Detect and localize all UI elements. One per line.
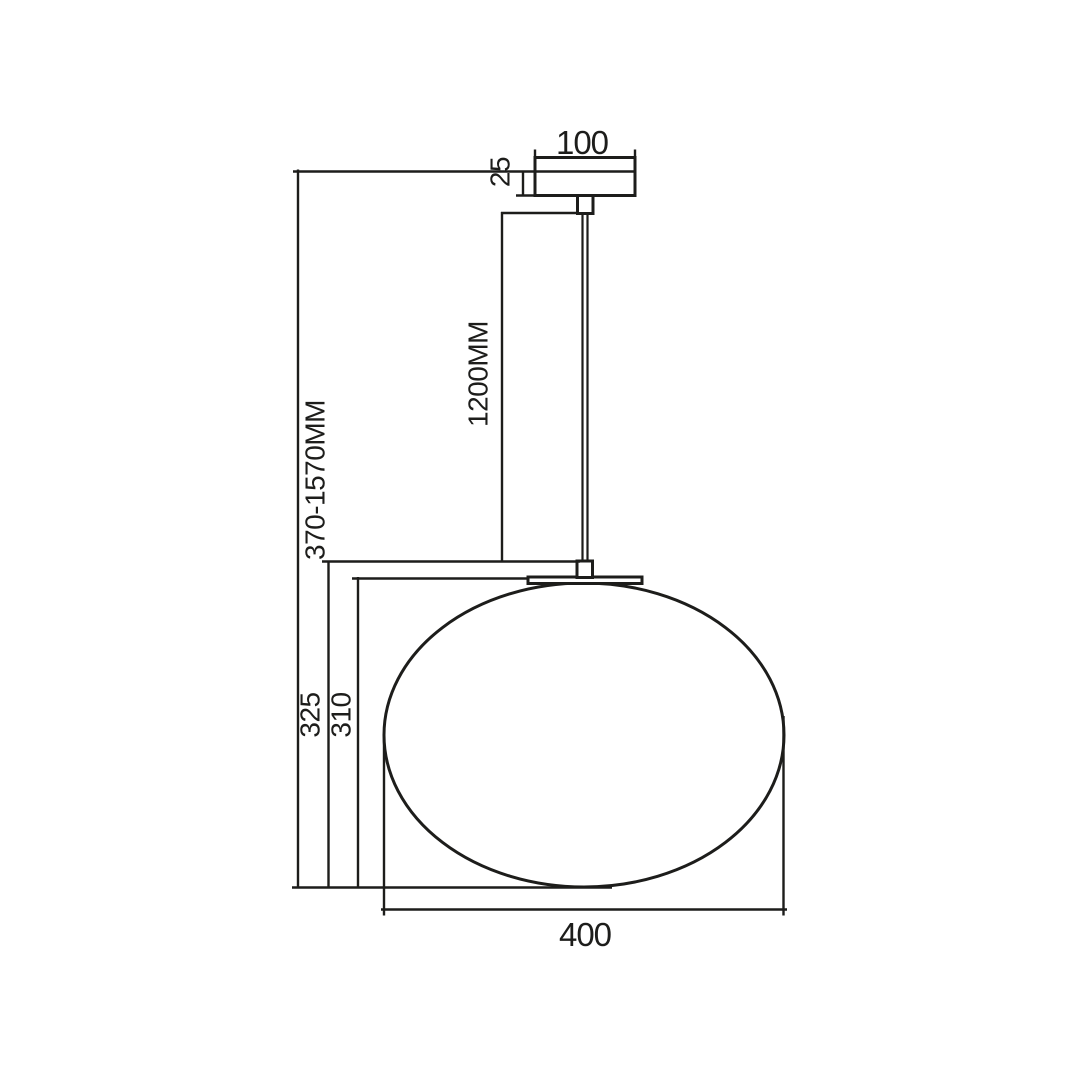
drawing-canvas: 100 25 1200MM 370-1570MM 325 310 400 (0, 0, 1080, 1080)
dim-label-shade-width: 400 (559, 916, 612, 953)
ceiling-stem-connector (578, 196, 594, 214)
dim-label-fixture-drop: 325 (295, 692, 326, 737)
shade-stem-connector (577, 561, 593, 578)
dim-label-canopy-width: 100 (556, 124, 609, 161)
dim-label-canopy-height: 25 (485, 157, 516, 187)
pendant-lamp-dimension-drawing: 100 25 1200MM 370-1570MM 325 310 400 (0, 0, 1080, 1080)
lamp-fixture (384, 158, 784, 888)
dim-label-rod-length: 1200MM (463, 321, 494, 427)
dim-label-overall-height-range: 370-1570MM (300, 400, 331, 560)
canopy-outline (535, 158, 635, 196)
globe-shade-outline (384, 583, 784, 887)
dim-label-shade-height: 310 (326, 692, 357, 737)
